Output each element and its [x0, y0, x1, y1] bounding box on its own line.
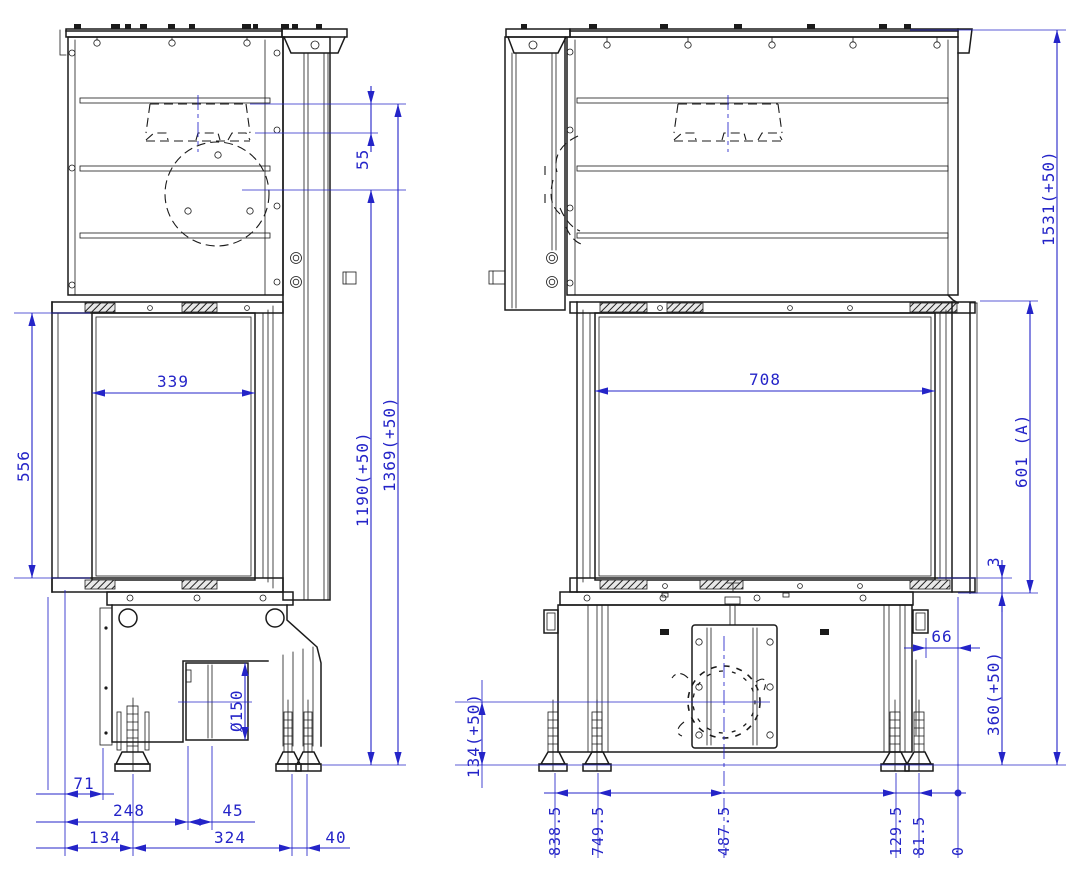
front-view-dimensions: 708 1531(+50) 601 (A) 3 360(+50) 66 134(… [455, 30, 1066, 858]
dim-duct-front-offset: 248 [113, 801, 145, 820]
dim-base-front-offset: 134 [89, 828, 121, 847]
dim-flue-drop: 55 [353, 149, 372, 170]
front-grommet-lower [547, 277, 558, 288]
dim-front-offset: 71 [73, 774, 94, 793]
dim-base-height: 360(+50) [984, 651, 1003, 736]
dim-door-height: 601 (A) [1012, 414, 1031, 488]
dim-ordinate-81: 81.5 [910, 816, 928, 856]
dim-ordinate-0: 0 [949, 846, 967, 856]
dim-ordinate-838: 838.5 [546, 806, 564, 856]
side-door-mechanism-right [182, 303, 217, 312]
front-top-plate [506, 24, 972, 53]
dim-duct-diameter: Ø150 [227, 689, 246, 732]
dim-duct-depth: 45 [222, 801, 243, 820]
dim-total-height: 1531(+50) [1039, 150, 1058, 246]
technical-drawing: 55 1190(+50) 1369(+50) 339 556 Ø150 71 2… [0, 0, 1080, 885]
dim-duct-axis-height: 134(+50) [464, 693, 483, 778]
front-foot-1 [539, 700, 567, 771]
side-connector [343, 272, 356, 284]
dim-glass-height: 556 [14, 450, 33, 482]
dim-flue-rear-height: 1190(+50) [353, 431, 372, 527]
dim-ordinate-129: 129.5 [887, 806, 905, 856]
front-foot-4 [905, 700, 933, 771]
dim-flue-top-height: 1369(+50) [380, 396, 399, 492]
front-door-mechanism-right [910, 303, 957, 312]
dim-side-glass-width: 339 [157, 372, 189, 391]
dim-rear-offset: 66 [931, 627, 952, 646]
side-view [52, 24, 356, 771]
side-flue-collar [146, 95, 250, 152]
front-door-mechanism-left [600, 303, 647, 312]
side-base-hole-rear [266, 609, 284, 627]
side-firebox [68, 37, 283, 295]
dim-frame-gap: 3 [984, 556, 1003, 567]
front-fan-plate [692, 625, 777, 748]
front-foot-2 [583, 700, 611, 771]
side-smoke-circle [165, 142, 269, 246]
dim-front-glass-width: 708 [749, 370, 781, 389]
side-door-mechanism-left [85, 303, 115, 312]
side-grommet-upper [291, 253, 302, 264]
front-firebox [567, 37, 958, 303]
front-view [489, 24, 977, 771]
side-door [52, 302, 283, 592]
side-base-hole-front [119, 609, 137, 627]
drawing-sheet: 55 1190(+50) 1369(+50) 339 556 Ø150 71 2… [0, 0, 1080, 885]
dim-rear-feet-offset: 40 [325, 828, 346, 847]
front-door [570, 302, 975, 592]
front-flue-collar [674, 95, 782, 152]
dim-base-depth: 324 [214, 828, 246, 847]
dim-ordinate-487: 487.5 [715, 806, 733, 856]
front-grommet-upper [547, 253, 558, 264]
front-top-right-tab [958, 29, 972, 53]
side-grommet-lower [291, 277, 302, 288]
front-connector [489, 271, 505, 284]
front-side-panel [970, 303, 977, 593]
front-glass [595, 313, 935, 580]
dim-ordinate-749: 749.5 [589, 806, 607, 856]
front-right-tab [913, 610, 928, 633]
side-feet [115, 698, 321, 771]
side-frame-column [283, 37, 356, 600]
side-glass [92, 313, 255, 580]
front-left-tab [544, 610, 558, 633]
side-top-plate [60, 24, 347, 55]
